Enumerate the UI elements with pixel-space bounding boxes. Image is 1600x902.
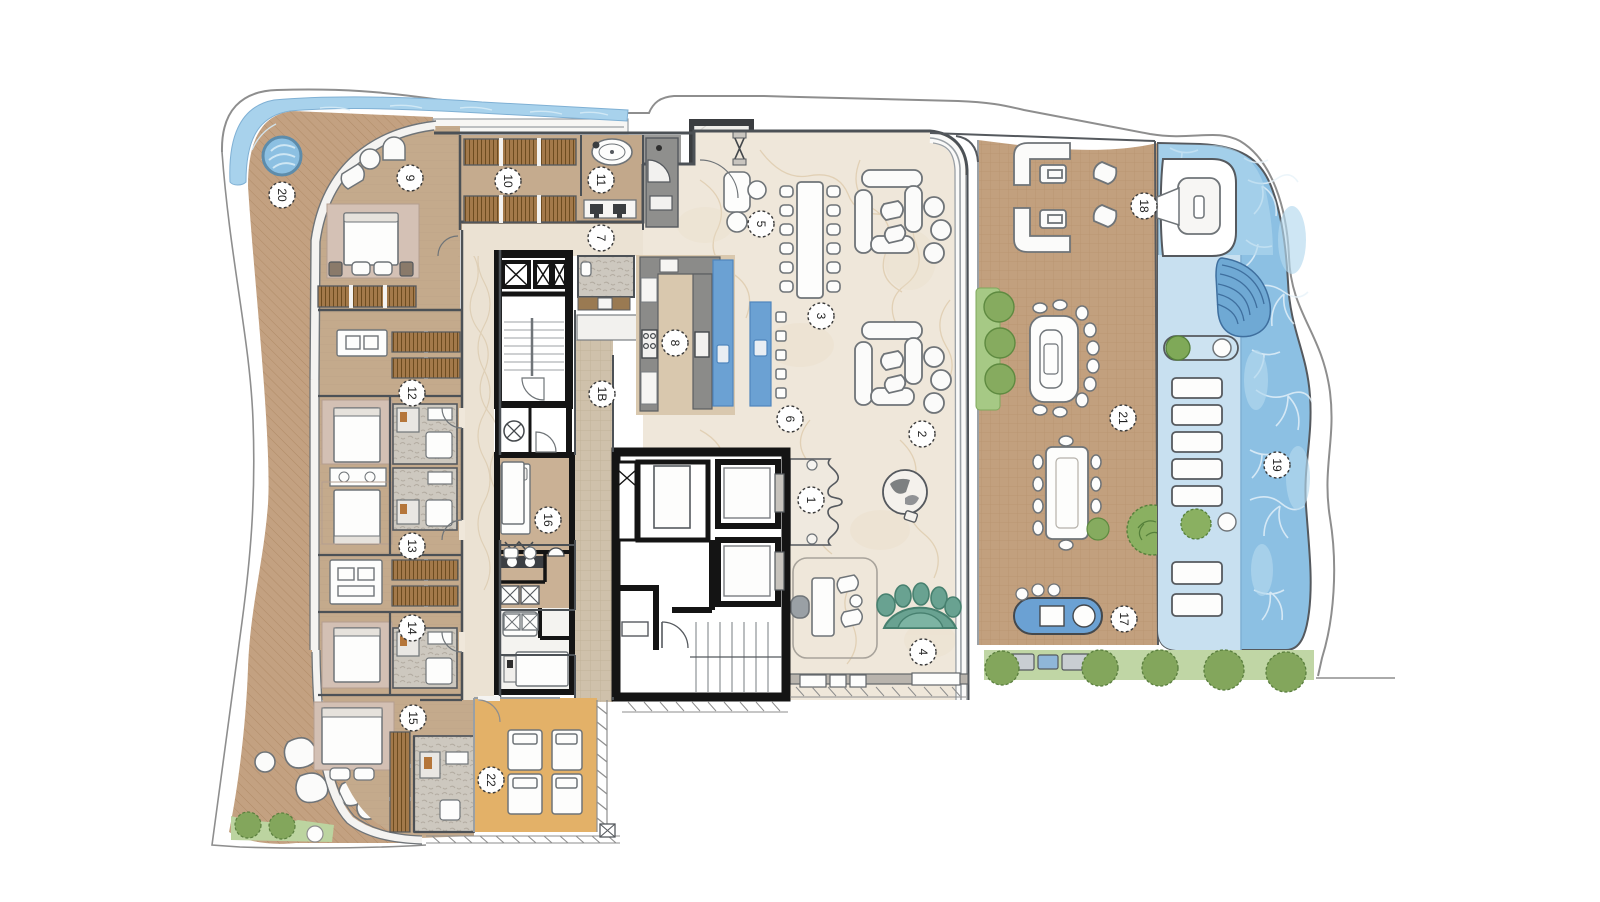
svg-text:4: 4 [916, 649, 930, 656]
svg-text:6: 6 [783, 416, 797, 423]
svg-text:7: 7 [594, 235, 608, 242]
svg-text:19: 19 [1270, 458, 1284, 472]
svg-text:13: 13 [405, 539, 419, 553]
svg-text:1B: 1B [595, 387, 609, 402]
svg-text:11: 11 [594, 174, 608, 187]
svg-text:18: 18 [1137, 199, 1151, 213]
svg-text:17: 17 [1117, 612, 1131, 626]
svg-text:3: 3 [814, 313, 828, 320]
svg-text:9: 9 [403, 175, 417, 182]
svg-text:14: 14 [405, 621, 419, 635]
svg-text:16: 16 [541, 513, 555, 527]
svg-text:10: 10 [501, 174, 515, 188]
svg-text:8: 8 [668, 340, 682, 347]
svg-text:21: 21 [1116, 411, 1130, 425]
svg-text:22: 22 [484, 773, 498, 787]
svg-text:5: 5 [754, 221, 768, 228]
svg-text:12: 12 [405, 386, 419, 400]
svg-text:1: 1 [804, 497, 818, 504]
svg-text:15: 15 [406, 711, 420, 725]
svg-text:2: 2 [915, 431, 929, 438]
svg-text:20: 20 [275, 188, 289, 202]
